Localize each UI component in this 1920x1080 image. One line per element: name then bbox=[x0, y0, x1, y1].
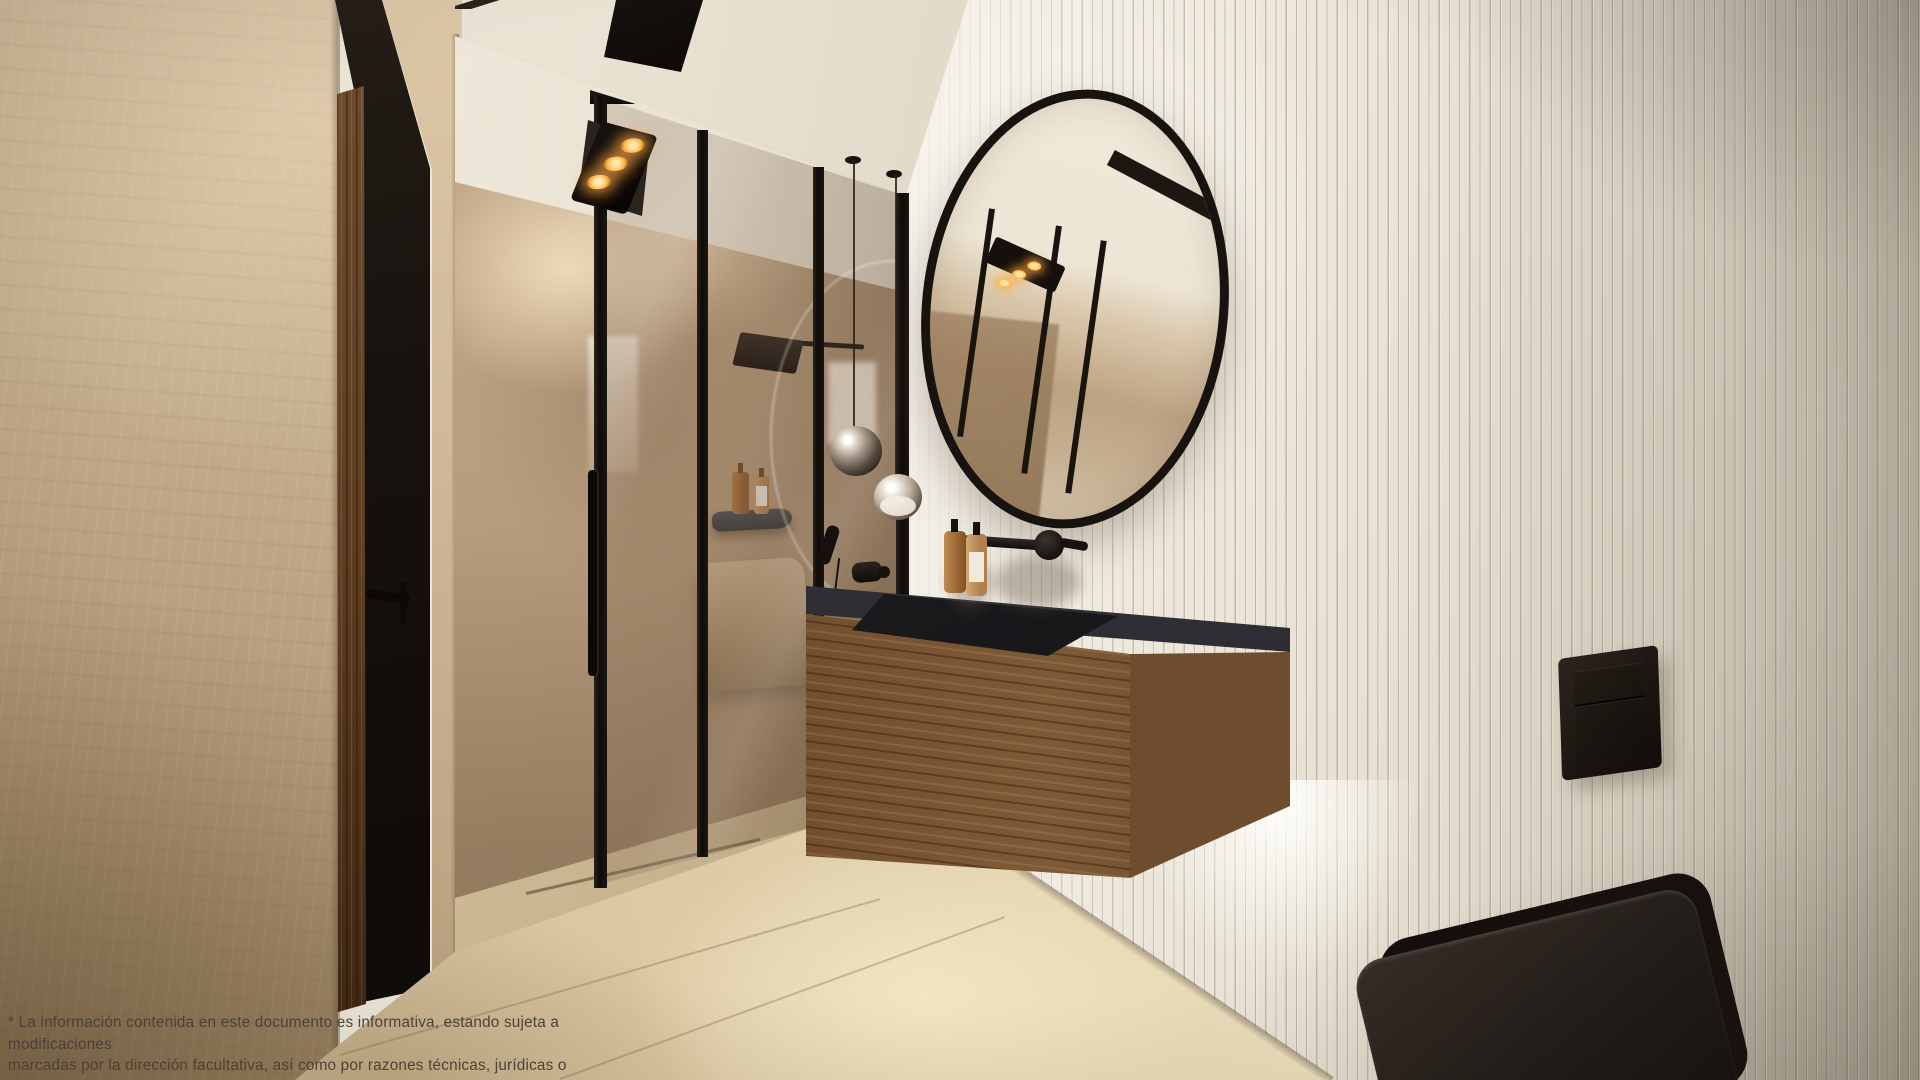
lotion-bottle bbox=[966, 534, 987, 596]
flush-button-seam bbox=[1575, 695, 1645, 707]
spotlight-lamp-icon bbox=[620, 138, 646, 154]
mirror-reflection-lamp bbox=[997, 278, 1012, 288]
mirror-reflection-wall bbox=[900, 309, 1059, 534]
disclaimer-line: * La información contenida en este docum… bbox=[8, 1012, 628, 1055]
bathroom-render: * La información contenida en este docum… bbox=[0, 0, 1920, 1080]
soap-bottle bbox=[944, 531, 966, 593]
spotlight-lamp-icon bbox=[603, 156, 629, 172]
pendant-ceiling-rose bbox=[886, 170, 902, 178]
pendant-cord bbox=[895, 174, 897, 476]
spotlight-lamp-icon bbox=[586, 174, 612, 190]
flush-buttons bbox=[1574, 662, 1647, 764]
chrome-sphere-pendant bbox=[830, 426, 882, 476]
mirror-reflection-mullion bbox=[1065, 240, 1106, 493]
legal-disclaimer: * La información contenida en este docum… bbox=[8, 1012, 628, 1080]
walnut-door-jamb bbox=[336, 84, 368, 1014]
shower-door-handle bbox=[588, 470, 597, 676]
travertine-wall bbox=[0, 0, 338, 1080]
pendant-cord bbox=[853, 160, 855, 428]
glass-mullion bbox=[697, 130, 708, 857]
faucet-shadow bbox=[994, 556, 1080, 608]
door-handle-plate bbox=[400, 582, 407, 624]
flush-plate bbox=[1558, 645, 1662, 781]
disclaimer-line: marcadas por la dirección facultativa, a… bbox=[8, 1055, 628, 1080]
mixer-knob bbox=[878, 566, 890, 578]
